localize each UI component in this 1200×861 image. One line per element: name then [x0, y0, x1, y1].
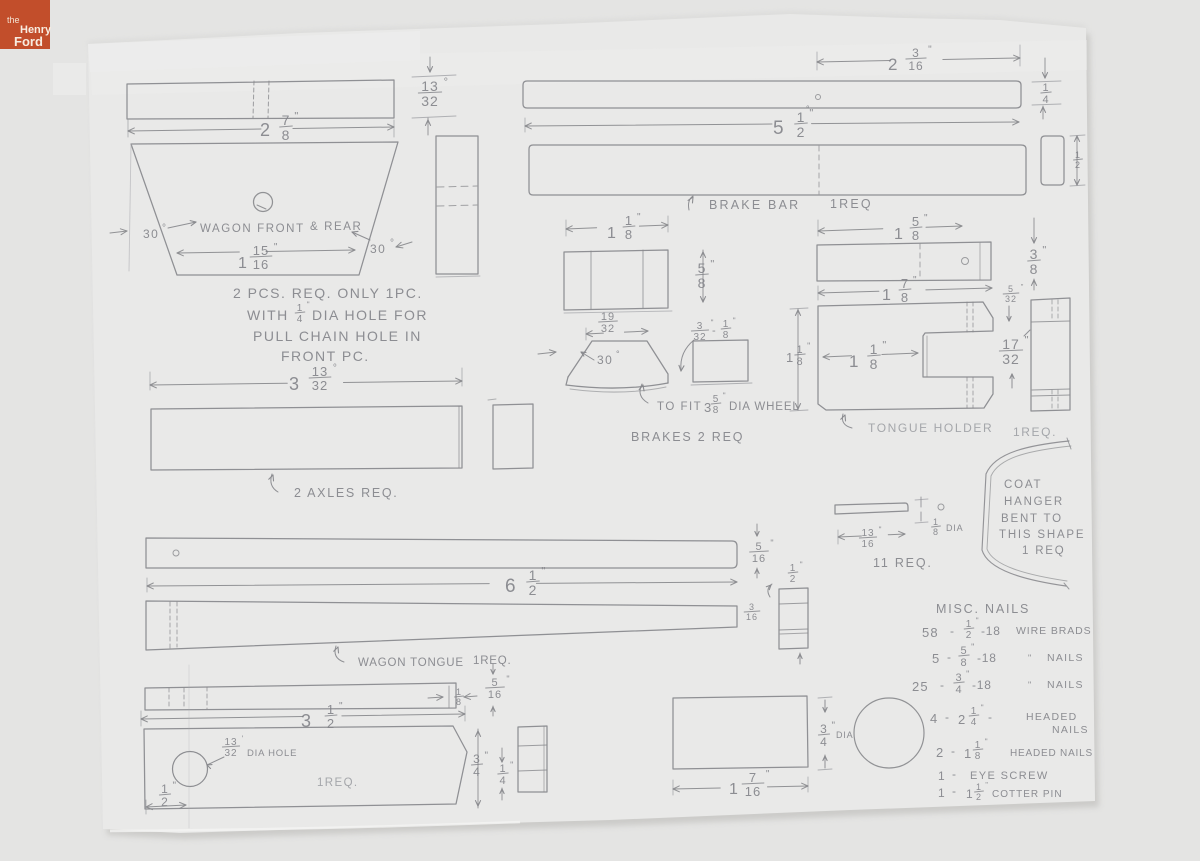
svg-text:3: 3	[955, 672, 962, 684]
svg-text:13: 13	[312, 364, 328, 379]
svg-text:7: 7	[282, 112, 291, 128]
svg-text:BRAKES 2 REQ: BRAKES 2 REQ	[631, 430, 744, 444]
svg-text:1: 1	[933, 517, 939, 527]
svg-text:1: 1	[938, 769, 946, 783]
svg-text:16: 16	[746, 612, 758, 622]
svg-text:2: 2	[958, 712, 967, 727]
svg-text:4: 4	[297, 314, 304, 325]
svg-text:NAILS: NAILS	[1047, 679, 1084, 691]
svg-text:1: 1	[297, 303, 304, 314]
svg-text:1: 1	[964, 746, 973, 761]
svg-text:1: 1	[723, 319, 730, 330]
svg-text:": "	[723, 392, 726, 401]
svg-text:1: 1	[870, 341, 879, 357]
svg-text:the: the	[7, 15, 20, 25]
svg-text:-: -	[940, 678, 946, 692]
svg-text:16: 16	[752, 553, 766, 565]
svg-text:1: 1	[966, 619, 973, 630]
svg-text:-: -	[947, 650, 953, 664]
svg-text:-: -	[951, 744, 957, 758]
svg-text:": "	[879, 526, 882, 535]
svg-text:32: 32	[1005, 294, 1017, 304]
svg-text:30: 30	[370, 242, 386, 256]
svg-text:1: 1	[1042, 82, 1049, 94]
svg-text:1: 1	[790, 563, 797, 574]
svg-text:NAILS: NAILS	[1052, 724, 1089, 736]
svg-text:16: 16	[745, 784, 761, 799]
svg-text:4: 4	[820, 735, 828, 749]
svg-text:°: °	[616, 349, 620, 359]
svg-text:16: 16	[488, 689, 502, 701]
svg-text:2: 2	[888, 55, 898, 74]
svg-text:1: 1	[499, 763, 506, 775]
svg-text:32: 32	[1002, 351, 1020, 367]
svg-text:19: 19	[601, 311, 615, 323]
svg-text:2: 2	[936, 745, 944, 760]
svg-text:1: 1	[976, 782, 982, 792]
svg-text:4: 4	[473, 765, 481, 779]
svg-text:WIRE BRADS: WIRE BRADS	[1016, 625, 1092, 637]
svg-text:": "	[339, 701, 343, 712]
svg-text:": "	[770, 538, 773, 548]
svg-text:": "	[1028, 680, 1033, 690]
svg-text:1: 1	[456, 687, 462, 697]
svg-text:FRONT PC.: FRONT PC.	[281, 348, 370, 364]
svg-text:5: 5	[912, 214, 920, 229]
svg-text:DIA: DIA	[836, 730, 853, 740]
svg-text:": "	[541, 565, 545, 577]
svg-text:1: 1	[966, 787, 975, 801]
svg-text:3: 3	[749, 602, 755, 612]
svg-text:7: 7	[901, 276, 909, 291]
svg-text:": "	[985, 738, 988, 747]
svg-text:": "	[710, 258, 714, 270]
svg-text:DIA HOLE FOR: DIA HOLE FOR	[312, 307, 428, 323]
svg-text:16: 16	[908, 59, 923, 73]
svg-text:HEADED NAILS: HEADED NAILS	[1010, 748, 1093, 759]
svg-text:1: 1	[238, 255, 248, 272]
svg-text:16: 16	[861, 539, 874, 550]
svg-text:": "	[485, 750, 489, 761]
svg-text:2: 2	[976, 792, 982, 802]
svg-text:1: 1	[882, 287, 892, 304]
svg-text:-: -	[712, 325, 718, 337]
svg-text:BENT TO: BENT TO	[1001, 513, 1063, 525]
svg-text:2 AXLES REQ.: 2 AXLES REQ.	[294, 486, 398, 500]
svg-text:2: 2	[797, 124, 806, 140]
svg-text:EYE SCREW: EYE SCREW	[970, 770, 1049, 782]
svg-text:WITH: WITH	[247, 307, 289, 323]
svg-text:1: 1	[161, 782, 169, 796]
svg-text:4: 4	[930, 711, 938, 726]
svg-text:2: 2	[966, 630, 973, 641]
svg-text:": "	[971, 642, 974, 652]
svg-text:DIA: DIA	[946, 523, 963, 533]
svg-text:PULL CHAIN HOLE IN: PULL CHAIN HOLE IN	[253, 328, 422, 344]
svg-text:13: 13	[421, 78, 439, 94]
svg-text:TONGUE HOLDER: TONGUE HOLDER	[868, 421, 993, 435]
svg-text:13: 13	[861, 528, 874, 539]
svg-text:5: 5	[491, 677, 498, 689]
svg-text:2: 2	[161, 795, 169, 809]
svg-text:°: °	[333, 363, 337, 374]
svg-text:": "	[506, 674, 509, 684]
svg-text:HEADED: HEADED	[1026, 711, 1078, 723]
svg-text:": "	[809, 107, 813, 119]
svg-text:25: 25	[912, 679, 929, 694]
svg-text:1: 1	[849, 352, 859, 371]
svg-text:THIS SHAPE: THIS SHAPE	[999, 529, 1085, 541]
svg-text:58: 58	[922, 625, 939, 640]
svg-text:-: -	[988, 710, 994, 724]
svg-text:5: 5	[773, 118, 785, 139]
svg-text:1: 1	[729, 781, 739, 798]
svg-text:11 REQ.: 11 REQ.	[873, 556, 933, 570]
svg-text:2: 2	[529, 582, 538, 598]
svg-text:": "	[924, 213, 928, 224]
svg-text:7: 7	[749, 770, 757, 785]
svg-text:MISC. NAILS: MISC. NAILS	[936, 602, 1030, 616]
svg-text:8: 8	[870, 356, 879, 372]
svg-text:8: 8	[912, 228, 920, 243]
svg-text:3: 3	[1030, 246, 1039, 262]
svg-text:1: 1	[938, 786, 946, 800]
svg-text:": "	[173, 780, 177, 791]
svg-text:": "	[882, 339, 886, 351]
svg-text:3: 3	[820, 722, 828, 736]
svg-text:32: 32	[421, 93, 439, 109]
svg-text:8: 8	[960, 657, 967, 669]
svg-text:": "	[510, 760, 513, 770]
svg-text:4: 4	[499, 775, 506, 787]
svg-text:1: 1	[797, 109, 806, 125]
svg-text:4: 4	[971, 717, 978, 728]
svg-text:": "	[294, 110, 298, 122]
svg-text:13: 13	[224, 737, 237, 748]
svg-text:5: 5	[755, 541, 762, 553]
svg-text:1: 1	[786, 350, 793, 365]
svg-text:": "	[800, 561, 803, 570]
svg-text:1: 1	[796, 344, 803, 356]
svg-text:": "	[1042, 244, 1046, 256]
svg-text:°: °	[444, 76, 448, 88]
svg-text:8: 8	[723, 330, 730, 341]
svg-text:& REAR: & REAR	[310, 221, 362, 233]
svg-text:": "	[832, 720, 836, 731]
svg-text:COTTER PIN: COTTER PIN	[992, 789, 1063, 800]
svg-text:2: 2	[327, 716, 335, 731]
svg-text:8: 8	[713, 405, 720, 416]
svg-text:1REQ.: 1REQ.	[1013, 425, 1057, 439]
svg-text:1: 1	[1075, 150, 1081, 160]
svg-text:": "	[1025, 334, 1029, 346]
svg-text:32: 32	[312, 378, 328, 393]
svg-text:1: 1	[607, 225, 617, 242]
svg-text:-: -	[952, 784, 958, 798]
svg-text:3: 3	[473, 752, 481, 766]
svg-text:8: 8	[901, 290, 909, 305]
svg-text:8: 8	[1030, 261, 1039, 277]
svg-text:": "	[637, 212, 641, 223]
svg-text:": "	[966, 669, 969, 679]
svg-text:°: °	[806, 104, 810, 114]
svg-text:": "	[928, 44, 932, 55]
svg-text:": "	[807, 341, 810, 351]
svg-text:5: 5	[1008, 284, 1014, 294]
svg-text:-: -	[952, 767, 958, 781]
svg-text:": "	[274, 242, 278, 253]
svg-text:16: 16	[253, 257, 269, 272]
svg-text:Ford: Ford	[14, 34, 43, 49]
svg-text:-18: -18	[977, 651, 997, 665]
svg-text:8: 8	[698, 275, 707, 291]
svg-text:5: 5	[713, 394, 720, 405]
svg-text:1: 1	[529, 567, 538, 583]
svg-text:32: 32	[224, 748, 237, 759]
svg-text:-: -	[945, 710, 951, 724]
svg-text:4: 4	[955, 684, 962, 696]
svg-text:DIA HOLE: DIA HOLE	[247, 748, 297, 759]
svg-text:°: °	[390, 238, 394, 249]
svg-text:HANGER: HANGER	[1004, 496, 1064, 508]
svg-text:1 REQ: 1 REQ	[1022, 545, 1066, 557]
svg-text:30: 30	[143, 227, 159, 241]
svg-text:NAILS: NAILS	[1047, 652, 1084, 664]
svg-text:1: 1	[894, 226, 904, 243]
svg-text:8: 8	[282, 127, 291, 143]
svg-text:8: 8	[796, 356, 803, 368]
svg-text:1REQ.: 1REQ.	[317, 777, 359, 789]
svg-text:6: 6	[505, 576, 517, 597]
svg-text:-18: -18	[972, 678, 992, 692]
svg-text:3: 3	[912, 46, 920, 60]
svg-text:": "	[976, 617, 979, 626]
svg-text:1: 1	[975, 740, 982, 751]
svg-text:8: 8	[456, 697, 462, 707]
svg-text:TO FIT: TO FIT	[657, 401, 702, 413]
svg-text:5: 5	[932, 651, 940, 666]
svg-text:2 PCS. REQ. ONLY 1PC.: 2 PCS. REQ. ONLY 1PC.	[233, 285, 423, 301]
svg-text:8: 8	[975, 751, 982, 762]
svg-text:15: 15	[253, 243, 269, 258]
svg-text:DIA WHEEL: DIA WHEEL	[729, 401, 800, 413]
svg-text:WAGON TONGUE: WAGON TONGUE	[358, 657, 464, 669]
svg-text:8: 8	[933, 527, 939, 537]
svg-text:BRAKE BAR: BRAKE BAR	[709, 198, 800, 212]
svg-text:3: 3	[697, 321, 704, 332]
svg-text:°: °	[162, 223, 166, 234]
svg-text:": "	[766, 769, 770, 780]
svg-text:-: -	[950, 624, 956, 638]
svg-text:17: 17	[1002, 336, 1020, 352]
svg-text:": "	[307, 301, 310, 310]
svg-text:2: 2	[1075, 160, 1081, 170]
svg-text:3: 3	[289, 374, 300, 394]
svg-text:": "	[1028, 653, 1033, 663]
svg-text:5: 5	[698, 260, 707, 276]
svg-text:": "	[913, 275, 917, 286]
svg-text:5: 5	[960, 645, 967, 657]
svg-text:30: 30	[597, 353, 613, 367]
svg-text:": "	[733, 317, 736, 326]
svg-text:COAT: COAT	[1004, 479, 1042, 491]
svg-text:8: 8	[625, 227, 633, 242]
svg-text:2: 2	[260, 120, 271, 140]
svg-text:1: 1	[625, 213, 633, 228]
svg-text:WAGON FRONT: WAGON FRONT	[200, 223, 305, 235]
svg-text:1REQ: 1REQ	[830, 197, 873, 211]
svg-text:1REQ.: 1REQ.	[473, 655, 512, 667]
svg-text:1: 1	[327, 702, 335, 717]
svg-text:1: 1	[971, 706, 978, 717]
svg-text:-18: -18	[981, 624, 1001, 638]
svg-text:": "	[981, 704, 984, 713]
svg-text:2: 2	[790, 574, 797, 585]
